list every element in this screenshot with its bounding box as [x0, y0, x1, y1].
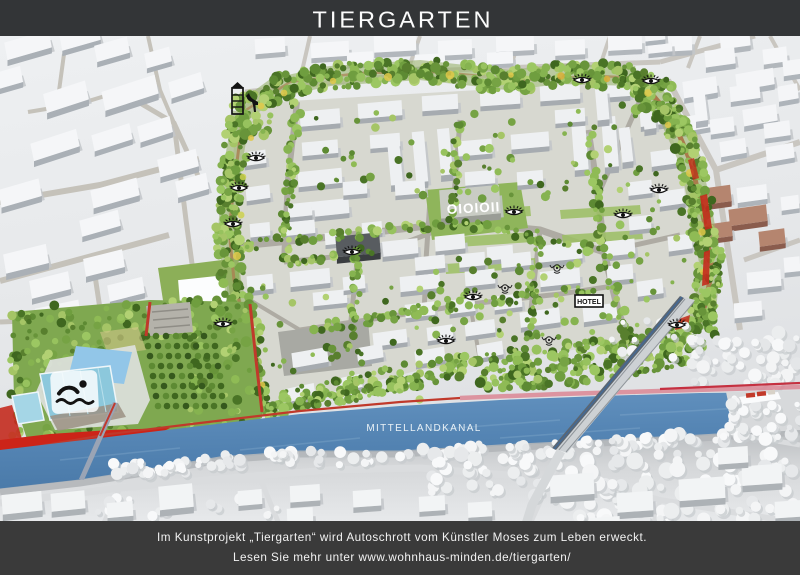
svg-text:Lesen Sie mehr unter www.wohnh: Lesen Sie mehr unter www.wohnhaus-minden… [233, 551, 571, 564]
svg-text:OIOIOII: OIOIOII [446, 199, 500, 217]
svg-text:Im Kunstprojekt „Tiergarten“ w: Im Kunstprojekt „Tiergarten“ wird Autosc… [157, 531, 647, 544]
svg-text:HOTEL: HOTEL [577, 299, 601, 306]
svg-text:MITTELLANDKANAL: MITTELLANDKANAL [366, 423, 481, 434]
svg-text:TIERGARTEN: TIERGARTEN [312, 7, 493, 33]
